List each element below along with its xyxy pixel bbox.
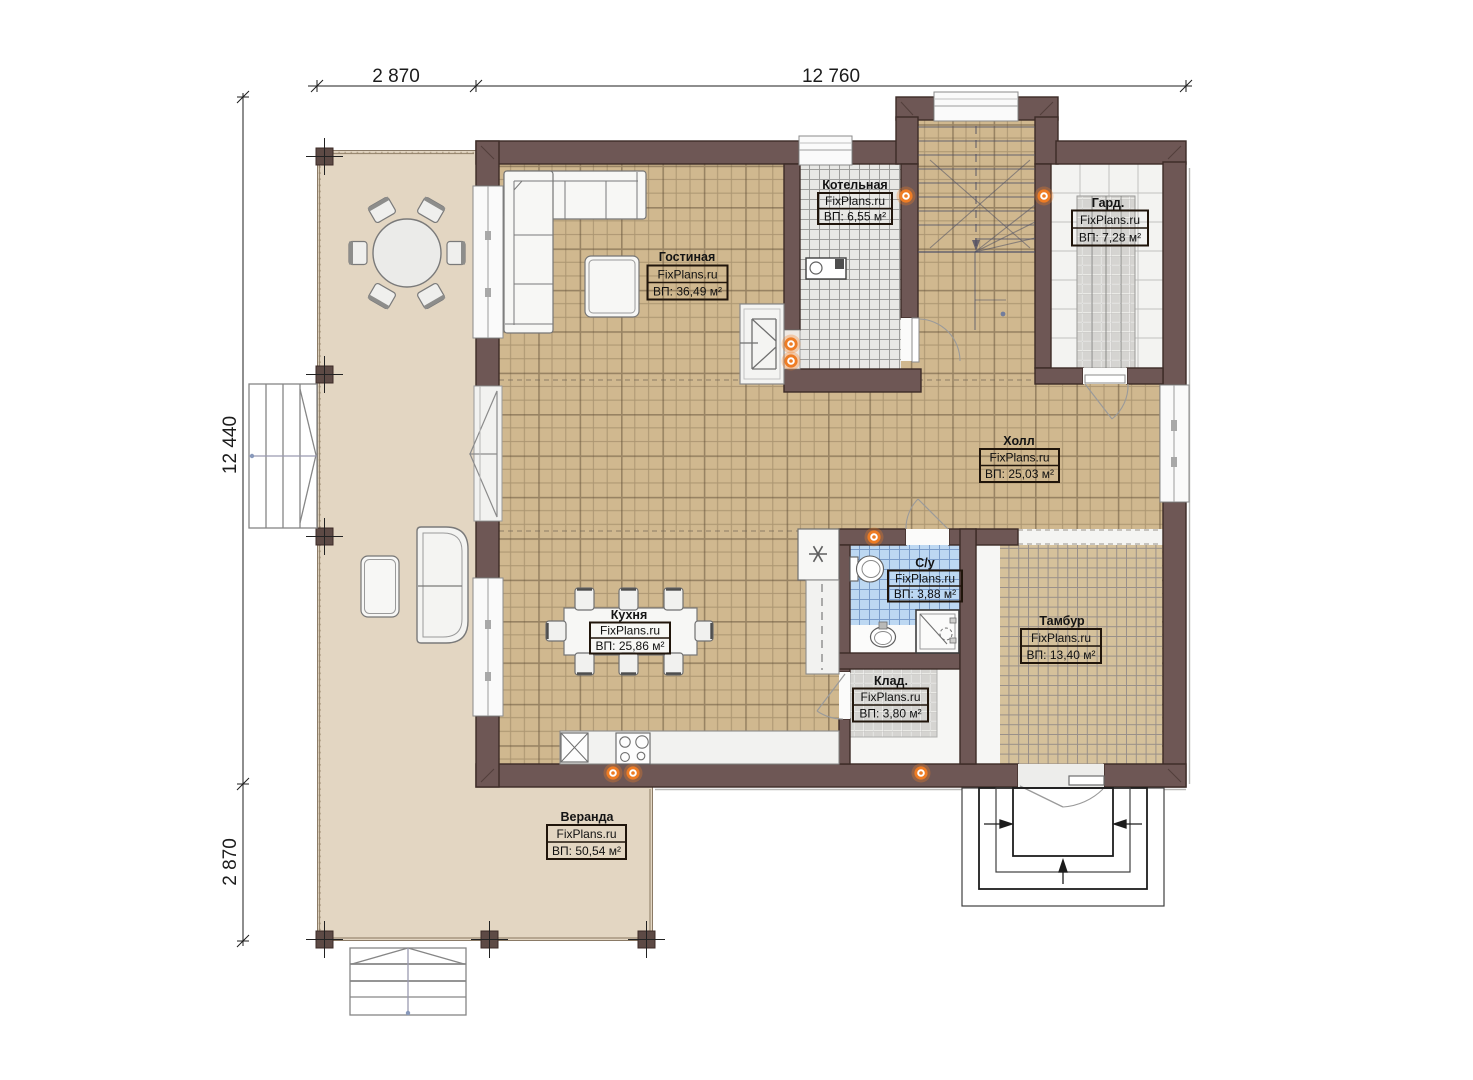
svg-text:Веранда: Веранда	[560, 810, 614, 824]
svg-text:ВП: 3,88 м²: ВП: 3,88 м²	[894, 587, 956, 601]
svg-text:FixPlans.ru: FixPlans.ru	[989, 451, 1049, 465]
svg-text:2 870: 2 870	[220, 838, 241, 886]
svg-text:ВП: 25,86 м²: ВП: 25,86 м²	[596, 639, 665, 653]
svg-text:ВП: 25,03 м²: ВП: 25,03 м²	[985, 467, 1054, 481]
svg-text:FixPlans.ru: FixPlans.ru	[895, 572, 955, 586]
svg-text:ВП: 3,80 м²: ВП: 3,80 м²	[859, 707, 921, 721]
svg-text:Клад.: Клад.	[874, 674, 908, 688]
svg-text:FixPlans.ru: FixPlans.ru	[860, 690, 920, 704]
svg-text:Гостиная: Гостиная	[659, 250, 716, 264]
svg-text:Холл: Холл	[1003, 434, 1034, 448]
svg-text:ВП: 6,55 м²: ВП: 6,55 м²	[824, 210, 886, 224]
svg-text:ВП: 50,54 м²: ВП: 50,54 м²	[552, 844, 621, 858]
svg-text:FixPlans.ru: FixPlans.ru	[556, 827, 616, 841]
svg-text:FixPlans.ru: FixPlans.ru	[825, 194, 885, 208]
svg-text:С/у: С/у	[915, 556, 935, 570]
svg-text:ВП: 13,40 м²: ВП: 13,40 м²	[1027, 648, 1096, 662]
svg-text:12 440: 12 440	[220, 416, 241, 474]
svg-text:2 870: 2 870	[372, 66, 420, 87]
svg-text:Котельная: Котельная	[822, 178, 887, 192]
svg-text:FixPlans.ru: FixPlans.ru	[1031, 631, 1091, 645]
svg-text:Гард.: Гард.	[1092, 196, 1125, 210]
svg-text:Кухня: Кухня	[611, 608, 648, 622]
svg-text:Тамбур: Тамбур	[1039, 614, 1085, 628]
svg-text:FixPlans.ru: FixPlans.ru	[600, 624, 660, 638]
svg-text:FixPlans.ru: FixPlans.ru	[1080, 213, 1140, 227]
svg-text:ВП: 7,28 м²: ВП: 7,28 м²	[1079, 231, 1141, 245]
svg-text:ВП: 36,49 м²: ВП: 36,49 м²	[653, 285, 722, 299]
svg-text:FixPlans.ru: FixPlans.ru	[657, 268, 717, 282]
svg-text:12 760: 12 760	[802, 66, 860, 87]
